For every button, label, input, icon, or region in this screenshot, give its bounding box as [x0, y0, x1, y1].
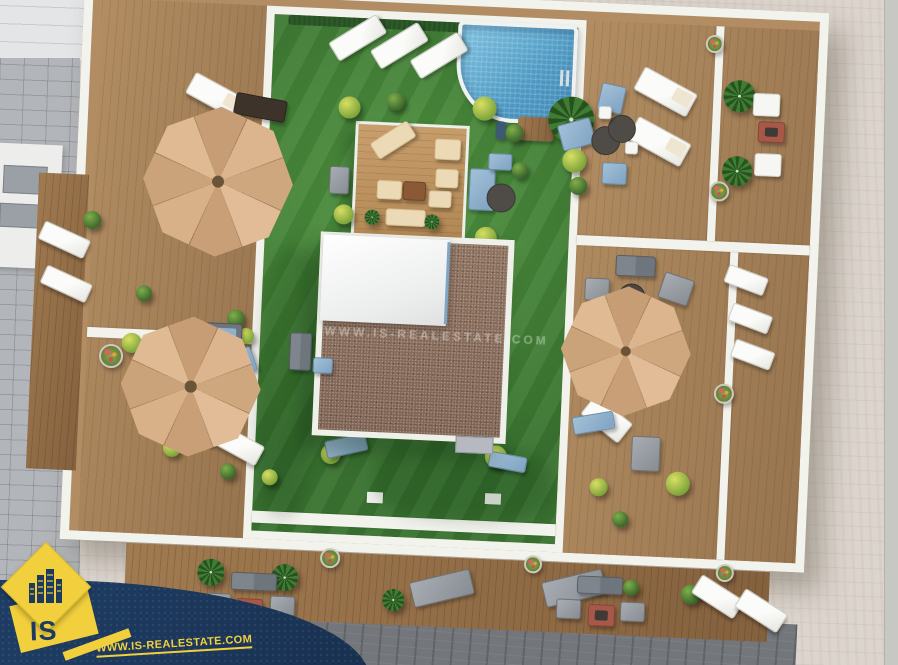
pool-rail: [495, 121, 506, 139]
gray-flat-lounger: [630, 436, 661, 472]
white-chair: [625, 141, 639, 155]
deck-bench-cushion: [385, 208, 426, 227]
gray-sofa: [289, 332, 313, 371]
building-rooftop: WWW.IS-REALESTATE.COM: [60, 0, 830, 573]
skylight-volume: [320, 234, 450, 326]
blue-chair: [488, 153, 513, 171]
gray-bench: [615, 255, 656, 278]
logo-buildings-icon: [26, 567, 66, 607]
fire-table: [757, 121, 785, 143]
gray-sofa: [577, 575, 624, 595]
gray-armchair: [620, 601, 646, 622]
deck-seat-cushion: [376, 180, 402, 200]
logo-monogram: IS: [29, 616, 58, 648]
gray-sofa: [231, 572, 278, 592]
fire-table: [587, 604, 615, 627]
deck-seat-cushion: [428, 190, 452, 208]
white-armchair: [753, 93, 781, 117]
rooftop-aerial-render: WWW.IS-REALESTATE.COM: [0, 0, 898, 665]
white-chair: [598, 106, 612, 120]
pavement-right-strip: [884, 0, 898, 665]
roof-vent: [455, 436, 494, 455]
gray-chair: [329, 166, 350, 195]
deck-table: [402, 181, 426, 201]
white-armchair: [754, 153, 782, 177]
blue-chair: [601, 162, 627, 185]
blue-chair: [312, 357, 333, 374]
deck-seat-cushion: [434, 138, 461, 160]
deck-seat-cushion: [435, 168, 459, 188]
gray-armchair: [556, 598, 582, 619]
